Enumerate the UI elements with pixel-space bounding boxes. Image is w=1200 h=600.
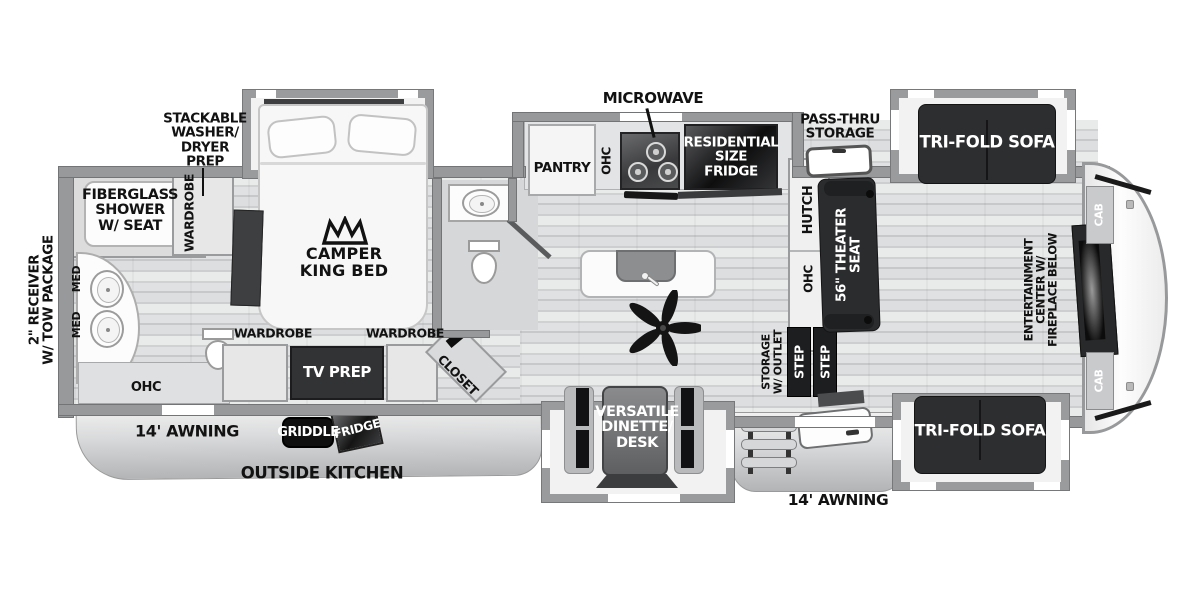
entry-step-bar (741, 457, 797, 468)
bedroom-slide-window (256, 90, 276, 98)
cupholder-icon (864, 316, 872, 324)
burner-icon (658, 162, 678, 182)
sofa-top-window (908, 90, 934, 98)
sofa-top-window (1038, 90, 1064, 98)
awning-right-label: 14' AWNING (788, 492, 889, 508)
cab-label: CAB (1094, 204, 1105, 227)
sofa-bottom-window (1061, 420, 1069, 460)
midbath-right-wall (508, 178, 517, 222)
bedroom-tv-dresser (230, 210, 263, 307)
pass-thru-label: PASS-THRU STORAGE (800, 113, 880, 142)
cooktop (620, 132, 680, 190)
dinette-base (596, 474, 678, 488)
med-cabinet-label: MED (71, 266, 83, 292)
bedroom-wardrobe-left (222, 344, 288, 402)
burner-icon (628, 162, 648, 182)
bedroom-slide-window (398, 90, 418, 98)
leader-line (202, 168, 204, 196)
sofa-top-window (1067, 110, 1075, 150)
vanity-sink (90, 310, 124, 348)
bath-ohc-label: OHC (131, 381, 161, 395)
step-label: STEP (818, 345, 831, 379)
rear-toilet-tank (202, 328, 234, 340)
cap-handle (1126, 200, 1134, 209)
residential-fridge-label: RESIDENTIAL SIZE FRIDGE (684, 136, 779, 179)
pass-thru-hatch-latch (832, 149, 846, 153)
midbath-left-wall (432, 178, 442, 336)
bed-pillow (266, 115, 338, 160)
trifold-sofa-bottom-label: TRI-FOLD SOFA (915, 423, 1046, 440)
cap-handle (1126, 382, 1134, 391)
midbath-sink (462, 189, 500, 217)
kitchen-ohc-label: OHC (601, 147, 614, 175)
bedroom-wardrobe-left-label: WARDROBE (234, 326, 312, 339)
sofa-bottom-window (910, 482, 936, 490)
outside-kitchen-label: OUTSIDE KITCHEN (241, 464, 404, 481)
rear-bottom-window (162, 405, 214, 415)
shower-label: FIBERGLASS SHOWER W/ SEAT (82, 188, 178, 234)
entry-door-opening (795, 417, 875, 427)
dinette-window (608, 494, 680, 502)
sofa-bottom-window (893, 420, 901, 460)
hutch-label: HUTCH (802, 186, 816, 235)
bed-comforter-fold (260, 162, 426, 165)
ceiling-fan-icon (625, 290, 701, 366)
storage-outlet-label: STORAGE W/ OUTLET (760, 330, 783, 394)
dinette-chair (576, 430, 589, 468)
entry-step-bar (741, 439, 797, 450)
tv-prep-label: TV PREP (303, 365, 371, 381)
sofa-top-window (891, 110, 899, 150)
awning-left-label: 14' AWNING (135, 424, 239, 441)
dinette-window (726, 430, 734, 468)
griddle-label: GRIDDLE (277, 426, 338, 440)
cupholder-icon (866, 190, 874, 198)
med-cabinet-label: MED (71, 312, 83, 338)
sofa-bottom-window (1034, 482, 1060, 490)
microwave-label: MICROWAVE (603, 91, 704, 107)
step-label: STEP (792, 345, 805, 379)
bedroom-wardrobe-right-label: WARDROBE (366, 326, 444, 339)
pantry-label: PANTRY (534, 161, 591, 175)
entry-door (796, 406, 873, 450)
trifold-sofa-top-label: TRI-FOLD SOFA (919, 133, 1054, 150)
hutch-ohc-label: OHC (803, 265, 816, 293)
theater-seat-label: 56" THEATER SEAT (835, 208, 864, 302)
rear-wardrobe-label: WARDROBE (182, 174, 195, 252)
tow-package-label: 2" RECEIVER W/ TOW PACKAGE (28, 235, 57, 364)
vanity-sink (90, 270, 124, 308)
dinette-chair (681, 430, 694, 468)
washer-dryer-prep-label: STACKABLE WASHER/ DRYER PREP (163, 111, 247, 168)
dinette-chair (576, 388, 589, 426)
midbath-toilet-tank (468, 240, 500, 252)
rv-floorplan: 2" RECEIVER W/ TOW PACKAGE STACKABLE WAS… (0, 0, 1200, 600)
dinette-window (542, 430, 550, 468)
bottom-wall-rear (58, 404, 546, 416)
burner-icon (646, 142, 666, 162)
crown-icon (318, 216, 372, 246)
king-bed-label: CAMPER KING BED (300, 246, 388, 280)
cab-label: CAB (1094, 370, 1105, 393)
entertainment-center-label: ENTERTAINMENT CENTER W/ FIREPLACE BELOW (1023, 233, 1060, 347)
bed-pillow (346, 113, 417, 157)
dinette-chair (681, 388, 694, 426)
top-wall-mid (426, 166, 526, 178)
dinette-label: VERSATILE DINETTE/ DESK (595, 405, 679, 451)
